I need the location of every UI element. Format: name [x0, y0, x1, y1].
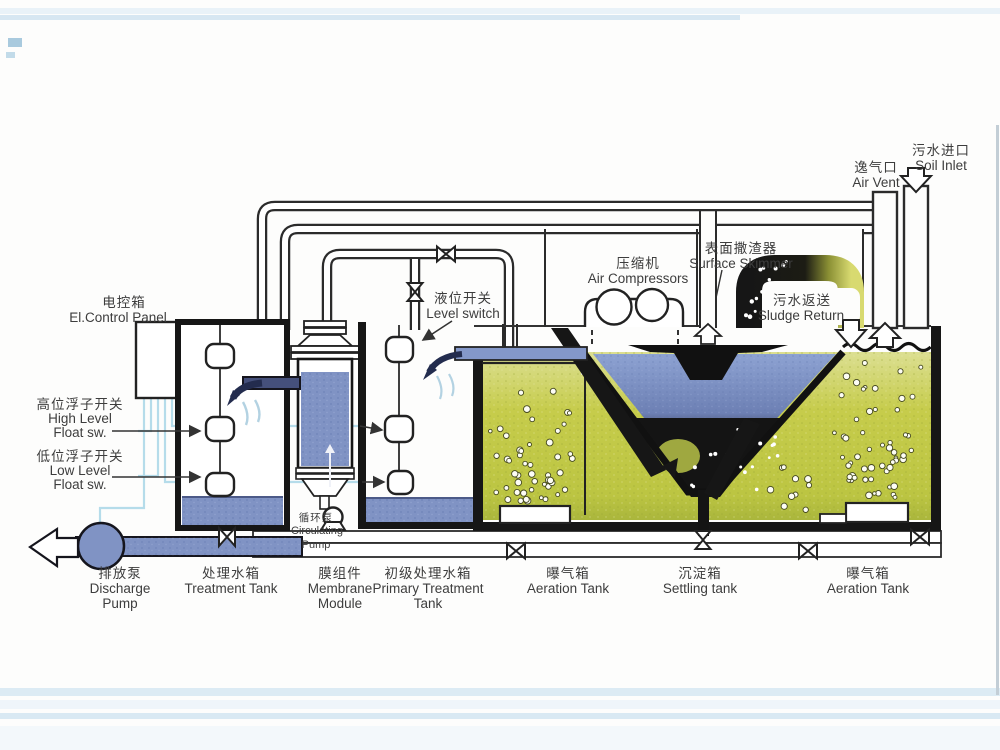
label-air-vent-zh: 逸气口 [854, 160, 898, 175]
label-high-float-zh: 高位浮子开关 [37, 396, 124, 412]
label-aeration-right-en: Aeration Tank [827, 581, 910, 596]
label-soil-inlet-zh: 污水进口 [912, 143, 970, 158]
label-control-panel-zh: 电控箱 [102, 295, 146, 310]
label-primary-en2: Tank [414, 596, 443, 611]
label-high-float-en2: Float sw. [53, 425, 106, 440]
label-low-float-en1: Low Level [50, 463, 111, 478]
diagram-canvas: 电控箱 El.Control Panel 高位浮子开关 High Level F… [0, 0, 1000, 750]
label-low-float-zh: 低位浮子开关 [37, 449, 124, 464]
label-discharge-en1: Discharge [90, 581, 151, 596]
label-circpump-en2: Pump [302, 539, 331, 551]
soil-inlet-pipe [901, 168, 931, 328]
label-aeration-left-en: Aeration Tank [527, 581, 610, 596]
bio-tank [423, 326, 941, 536]
discharge-pump-body [78, 523, 124, 569]
label-control-panel-en: El.Control Panel [69, 310, 167, 325]
air-compressor-2 [636, 289, 668, 321]
label-treatment-en: Treatment Tank [184, 581, 277, 596]
bottom-piping [253, 531, 941, 557]
label-membrane-en2: Module [318, 596, 362, 611]
level-switch-floats [385, 337, 413, 494]
control-panel-box [136, 322, 180, 398]
label-discharge-zh: 排放泵 [98, 566, 142, 581]
label-settling-zh: 沉淀箱 [678, 566, 722, 581]
air-compressor-1 [597, 290, 632, 325]
label-skimmer-en: Surface Skimmer [689, 256, 793, 271]
label-air-vent-en: Air Vent [852, 175, 900, 190]
label-membrane-en1: Membrane [308, 581, 373, 596]
label-membrane-zh: 膜组件 [318, 566, 362, 581]
label-skimmer-zh: 表面撒渣器 [705, 241, 778, 256]
float-switch [206, 344, 234, 496]
label-aeration-left-zh: 曝气箱 [546, 566, 590, 581]
air-vent-pipe [870, 192, 900, 347]
label-settling-en: Settling tank [663, 581, 738, 596]
label-compressors-en: Air Compressors [588, 271, 689, 286]
label-levelswitch-zh: 液位开关 [434, 291, 492, 306]
label-compressors-zh: 压缩机 [616, 256, 660, 271]
label-circpump-zh: 循环泵 [299, 511, 334, 524]
label-sludge-return-en: Sludge Return [758, 308, 844, 323]
label-soil-inlet-en: Soil Inlet [915, 158, 967, 173]
label-discharge-en2: Pump [102, 596, 137, 611]
treatment-system-diagram: 电控箱 El.Control Panel 高位浮子开关 High Level F… [0, 0, 1000, 750]
label-low-float-en2: Float sw. [53, 477, 106, 492]
label-circpump-en1: Circulating [291, 525, 343, 537]
label-levelswitch-en: Level switch [426, 306, 500, 321]
label-aeration-right-zh: 曝气箱 [846, 566, 890, 581]
label-treatment-zh: 处理水箱 [202, 566, 260, 581]
label-high-float-en1: High Level [48, 411, 112, 426]
label-primary-zh: 初级处理水箱 [385, 565, 472, 581]
label-sludge-return-zh: 污水返送 [773, 293, 831, 308]
label-primary-en1: Primary Treatment [372, 581, 483, 596]
outlet-arrow-icon [30, 529, 78, 566]
